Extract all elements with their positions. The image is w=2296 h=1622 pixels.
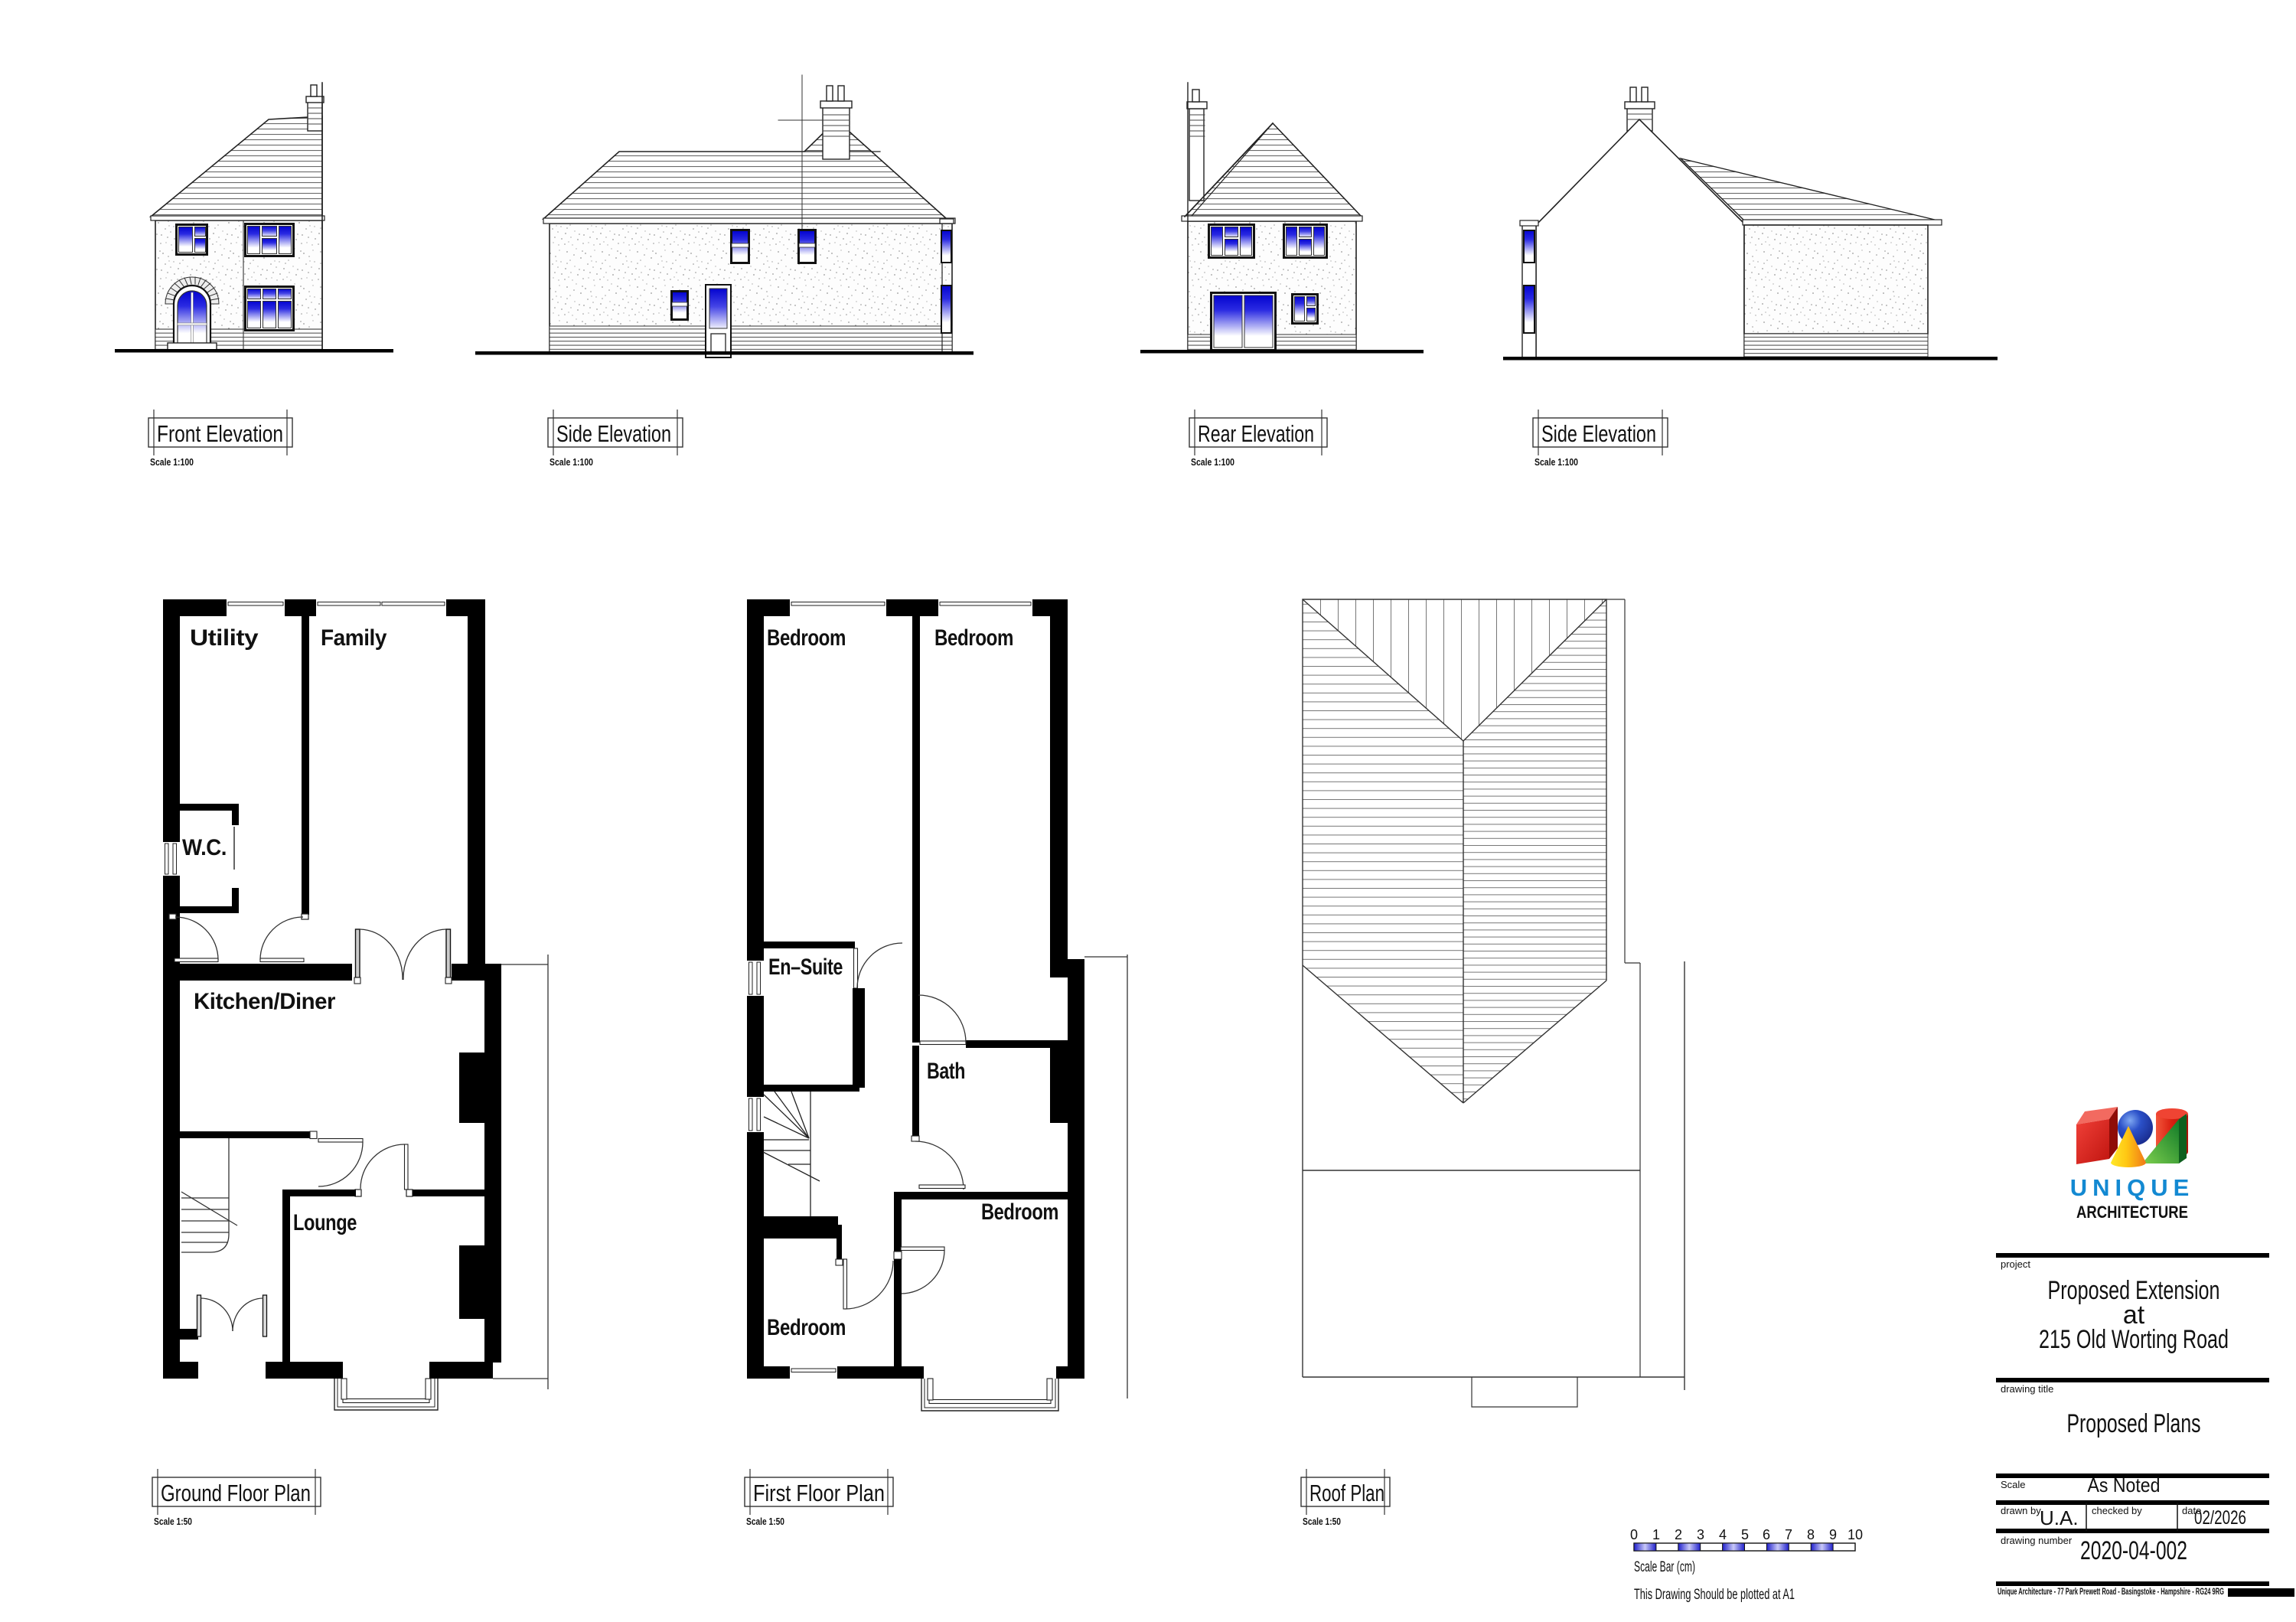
svg-text:Ground Floor Plan: Ground Floor Plan xyxy=(161,1480,311,1506)
svg-text:project: project xyxy=(2001,1258,2030,1270)
svg-text:This Drawing Should be plotted: This Drawing Should be plotted at A1 xyxy=(1634,1587,1795,1603)
svg-text:3: 3 xyxy=(1697,1527,1704,1542)
svg-text:UNIQUE: UNIQUE xyxy=(2070,1174,2195,1201)
svg-text:Side Elevation: Side Elevation xyxy=(1541,420,1656,447)
svg-text:Front Elevation: Front Elevation xyxy=(157,420,283,447)
svg-text:First Floor Plan: First Floor Plan xyxy=(753,1480,885,1506)
svg-text:W.C.: W.C. xyxy=(182,835,227,860)
svg-text:9: 9 xyxy=(1829,1527,1837,1542)
svg-text:Scale Bar (cm): Scale Bar (cm) xyxy=(1634,1559,1695,1575)
svg-text:Scale 1:50: Scale 1:50 xyxy=(1303,1516,1341,1527)
svg-text:Scale 1:100: Scale 1:100 xyxy=(550,456,593,468)
svg-text:02/2026: 02/2026 xyxy=(2194,1507,2246,1529)
svg-text:As Noted: As Noted xyxy=(2088,1474,2161,1496)
svg-text:drawing number: drawing number xyxy=(2001,1535,2073,1546)
svg-text:Family: Family xyxy=(321,625,387,651)
svg-text:Scale 1:50: Scale 1:50 xyxy=(154,1516,192,1527)
svg-text:Scale 1:100: Scale 1:100 xyxy=(1534,456,1578,468)
svg-text:Kitchen/Diner: Kitchen/Diner xyxy=(194,989,336,1014)
svg-text:Roof Plan: Roof Plan xyxy=(1309,1480,1384,1506)
svg-text:4: 4 xyxy=(1719,1527,1727,1542)
svg-text:2: 2 xyxy=(1675,1527,1682,1542)
svg-text:Unique Architecture - 77 Park: Unique Architecture - 77 Park Prewett Ro… xyxy=(1998,1586,2224,1597)
svg-text:7: 7 xyxy=(1785,1527,1792,1542)
svg-text:10: 10 xyxy=(1848,1527,1863,1542)
svg-text:Scale 1:100: Scale 1:100 xyxy=(150,456,194,468)
svg-text:Bath: Bath xyxy=(927,1059,965,1084)
svg-text:Scale: Scale xyxy=(2001,1479,2026,1490)
svg-text:6: 6 xyxy=(1763,1527,1770,1542)
svg-text:215 Old Worting Road: 215 Old Worting Road xyxy=(2039,1325,2229,1354)
svg-text:U.A.: U.A. xyxy=(2040,1506,2079,1529)
svg-text:Scale 1:100: Scale 1:100 xyxy=(1191,456,1234,468)
svg-text:Lounge: Lounge xyxy=(293,1210,357,1235)
svg-text:Bedroom: Bedroom xyxy=(934,625,1013,651)
svg-text:ARCHITECTURE: ARCHITECTURE xyxy=(2076,1203,2188,1222)
svg-text:5: 5 xyxy=(1741,1527,1749,1542)
svg-text:drawing title: drawing title xyxy=(2001,1383,2053,1395)
svg-text:1: 1 xyxy=(1652,1527,1660,1542)
svg-text:Proposed Plans: Proposed Plans xyxy=(2067,1409,2201,1438)
svg-text:Scale 1:50: Scale 1:50 xyxy=(746,1516,784,1527)
svg-text:Side Elevation: Side Elevation xyxy=(556,420,671,447)
svg-text:Utility: Utility xyxy=(190,625,259,651)
svg-text:checked by: checked by xyxy=(2092,1505,2142,1516)
svg-text:En–Suite: En–Suite xyxy=(768,955,843,980)
svg-text:drawn by: drawn by xyxy=(2001,1505,2041,1516)
svg-text:2020-04-002: 2020-04-002 xyxy=(2080,1536,2187,1565)
svg-text:Bedroom: Bedroom xyxy=(767,625,846,651)
svg-text:0: 0 xyxy=(1630,1527,1638,1542)
svg-text:Bedroom: Bedroom xyxy=(767,1315,846,1340)
svg-text:Bedroom: Bedroom xyxy=(981,1199,1058,1225)
svg-text:Rear Elevation: Rear Elevation xyxy=(1198,420,1314,447)
svg-text:8: 8 xyxy=(1807,1527,1815,1542)
